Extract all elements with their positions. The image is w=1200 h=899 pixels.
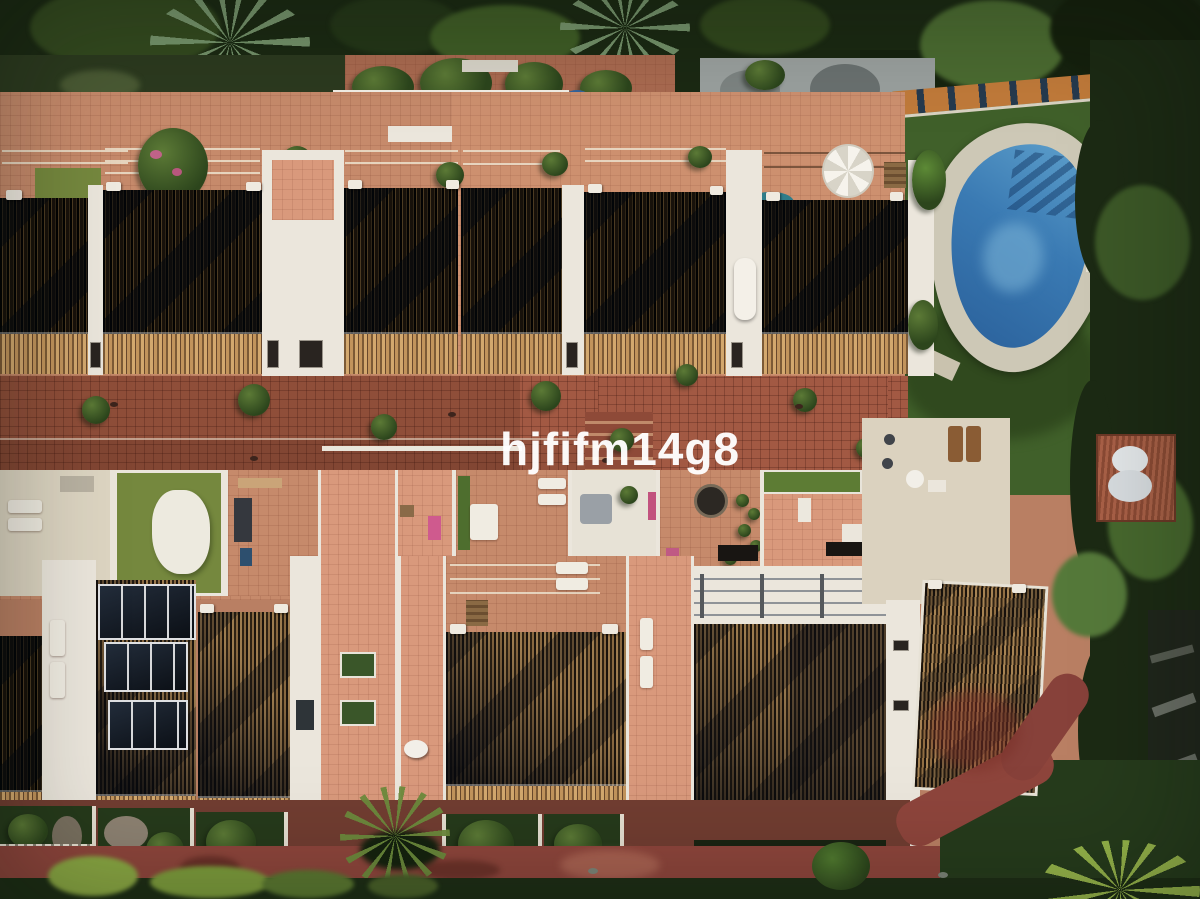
banana-plant <box>908 300 938 350</box>
solar-panel-array <box>104 642 188 692</box>
blue-bin <box>240 548 252 566</box>
chair <box>400 505 414 517</box>
green-awning <box>340 700 376 726</box>
roof-eave <box>344 334 458 374</box>
pergola-beam <box>2 150 128 152</box>
lattice-gate <box>798 498 811 522</box>
roof-shadow <box>0 198 88 334</box>
roof-shadow <box>762 200 908 334</box>
parasol <box>906 470 924 488</box>
walkway-bush <box>676 364 698 386</box>
wooden-chairs <box>466 600 488 626</box>
roof-shadow <box>446 632 626 800</box>
neighbor-step <box>1150 644 1195 663</box>
roof-eave <box>762 334 908 374</box>
white-tarp <box>1108 470 1152 502</box>
chimney <box>106 182 121 191</box>
wooden-chairs <box>884 162 906 188</box>
roof-eave <box>103 334 262 374</box>
terrace-strip <box>398 556 446 806</box>
dark-sofa <box>234 498 252 542</box>
white-terrace-strip <box>42 560 96 800</box>
lounger <box>640 618 653 650</box>
drain-cover <box>448 412 456 417</box>
tile-roof <box>461 188 562 334</box>
hedge-tree-bright <box>1052 552 1127 637</box>
roof-shadow <box>584 192 726 334</box>
path-highlight <box>560 850 660 880</box>
lounger <box>556 562 588 574</box>
neighbor-step <box>1152 693 1197 717</box>
potted-plant <box>736 494 749 507</box>
pergola-beam <box>2 162 128 164</box>
railing-post <box>700 574 704 618</box>
green-awning <box>340 652 376 678</box>
bright-bush <box>48 856 138 896</box>
lounger <box>8 500 42 513</box>
turf-terrace <box>114 470 224 596</box>
path-wear <box>930 690 1020 770</box>
water-reflection <box>979 218 1048 296</box>
lounger <box>538 478 566 489</box>
grey-daybed <box>580 494 612 524</box>
lounger <box>8 518 42 531</box>
window <box>267 340 279 368</box>
chimney <box>348 180 362 189</box>
tile-roof <box>103 190 262 334</box>
pink-lounger <box>428 516 441 540</box>
palm-tree <box>340 786 450 886</box>
roof-eave <box>0 334 88 374</box>
tile-roof <box>344 188 458 334</box>
satellite-dish <box>404 740 428 758</box>
terrace-strip <box>626 556 694 806</box>
tile-roof-sunlit <box>198 612 290 798</box>
pergola-terrace <box>762 470 862 580</box>
round-bbq-table <box>694 484 728 518</box>
chimney <box>274 604 288 613</box>
cream-patio <box>862 418 1010 604</box>
garden-wall <box>190 808 194 850</box>
chimney <box>450 624 466 634</box>
white-canopy <box>152 490 210 574</box>
chimney <box>928 580 942 589</box>
pergola-beam <box>345 150 458 152</box>
lounger <box>50 620 65 656</box>
roof-eave <box>584 334 726 374</box>
pink-flowers <box>172 168 182 176</box>
wooden-lounger <box>966 426 981 462</box>
round-table <box>882 458 893 469</box>
potted-plant <box>688 146 712 168</box>
daybed <box>470 504 498 540</box>
chimney <box>890 192 903 201</box>
pergola-post <box>110 470 114 596</box>
aerial-photo: hjfifm14g8 <box>0 0 1200 899</box>
chimney <box>446 180 459 189</box>
watermark-text: hjfifm14g8 <box>500 422 740 476</box>
white-table <box>928 480 946 492</box>
soil-patch <box>104 816 148 850</box>
chimney <box>766 192 780 201</box>
tree-crown-bright <box>920 0 1065 90</box>
roof-shadow <box>103 190 262 334</box>
outdoor-sofa <box>60 476 94 492</box>
drain-cover <box>110 402 118 407</box>
white-umbrella <box>822 144 874 198</box>
garden-bench <box>462 60 518 72</box>
round-table <box>884 434 895 445</box>
bush <box>368 874 438 898</box>
tile-roof <box>0 198 88 334</box>
solar-panel-array <box>108 700 188 750</box>
window <box>893 700 909 711</box>
chimney <box>246 182 261 191</box>
tile-roof <box>584 192 726 334</box>
walkway-bush <box>531 381 561 411</box>
window <box>566 342 578 368</box>
pink-flowers <box>150 150 162 159</box>
roof-eave <box>461 334 562 374</box>
chimney <box>588 184 602 193</box>
lounger <box>640 656 653 688</box>
garden-wall <box>92 806 96 848</box>
hedge-tree <box>1095 185 1190 300</box>
lounger <box>50 662 65 698</box>
walkway-railing <box>322 446 522 451</box>
potted-plant <box>542 152 568 176</box>
wooden-lounger <box>948 426 963 462</box>
chimney <box>710 186 723 195</box>
round-bush <box>812 842 870 890</box>
tile-roof <box>762 200 908 334</box>
potted-plant <box>738 524 751 537</box>
drain-cover <box>250 456 258 461</box>
white-wall-strip <box>290 556 318 806</box>
railing-post <box>820 574 824 618</box>
roof-shadow <box>344 188 458 334</box>
potted-plant <box>748 508 760 520</box>
chimney <box>1012 584 1026 593</box>
tile-roof-sunlit <box>446 632 626 800</box>
ac-unit <box>296 700 314 730</box>
window <box>731 342 743 368</box>
pergola-beam <box>450 592 600 594</box>
pergola-beam <box>463 150 560 152</box>
drain-cover <box>588 868 598 874</box>
drain-cover <box>938 872 948 878</box>
banana-plant <box>912 150 946 210</box>
corridor-wall <box>318 470 321 835</box>
shrub <box>745 60 785 90</box>
planter-box <box>388 126 452 142</box>
chimney <box>602 624 618 634</box>
railing-post <box>760 574 764 618</box>
pergola-post <box>224 470 228 596</box>
chimney <box>200 604 214 613</box>
lounger <box>538 494 566 505</box>
lounger <box>556 578 588 590</box>
vertical-garden <box>458 476 470 550</box>
window <box>893 640 909 651</box>
solar-panel-array <box>98 584 196 640</box>
drain-cover <box>795 404 803 409</box>
bush <box>262 870 354 898</box>
roof-shadow <box>198 612 290 798</box>
shed-roof <box>1096 434 1176 522</box>
shrub <box>8 814 48 848</box>
walkway-bush <box>82 396 110 424</box>
bench <box>238 478 282 488</box>
water-heater-units <box>734 258 756 320</box>
walkway-bush <box>371 414 397 440</box>
stair-opening <box>718 545 758 561</box>
roof-terrace <box>446 556 626 634</box>
chimney <box>6 190 22 200</box>
pergola-post <box>760 470 764 580</box>
window <box>90 342 101 368</box>
potted-plant <box>620 486 638 504</box>
walkway-bush <box>238 384 270 416</box>
terrace-inset <box>272 160 334 220</box>
window <box>299 340 323 368</box>
roof-shadow <box>461 188 562 334</box>
bright-bush <box>150 866 270 898</box>
vine-pergola <box>762 470 862 494</box>
